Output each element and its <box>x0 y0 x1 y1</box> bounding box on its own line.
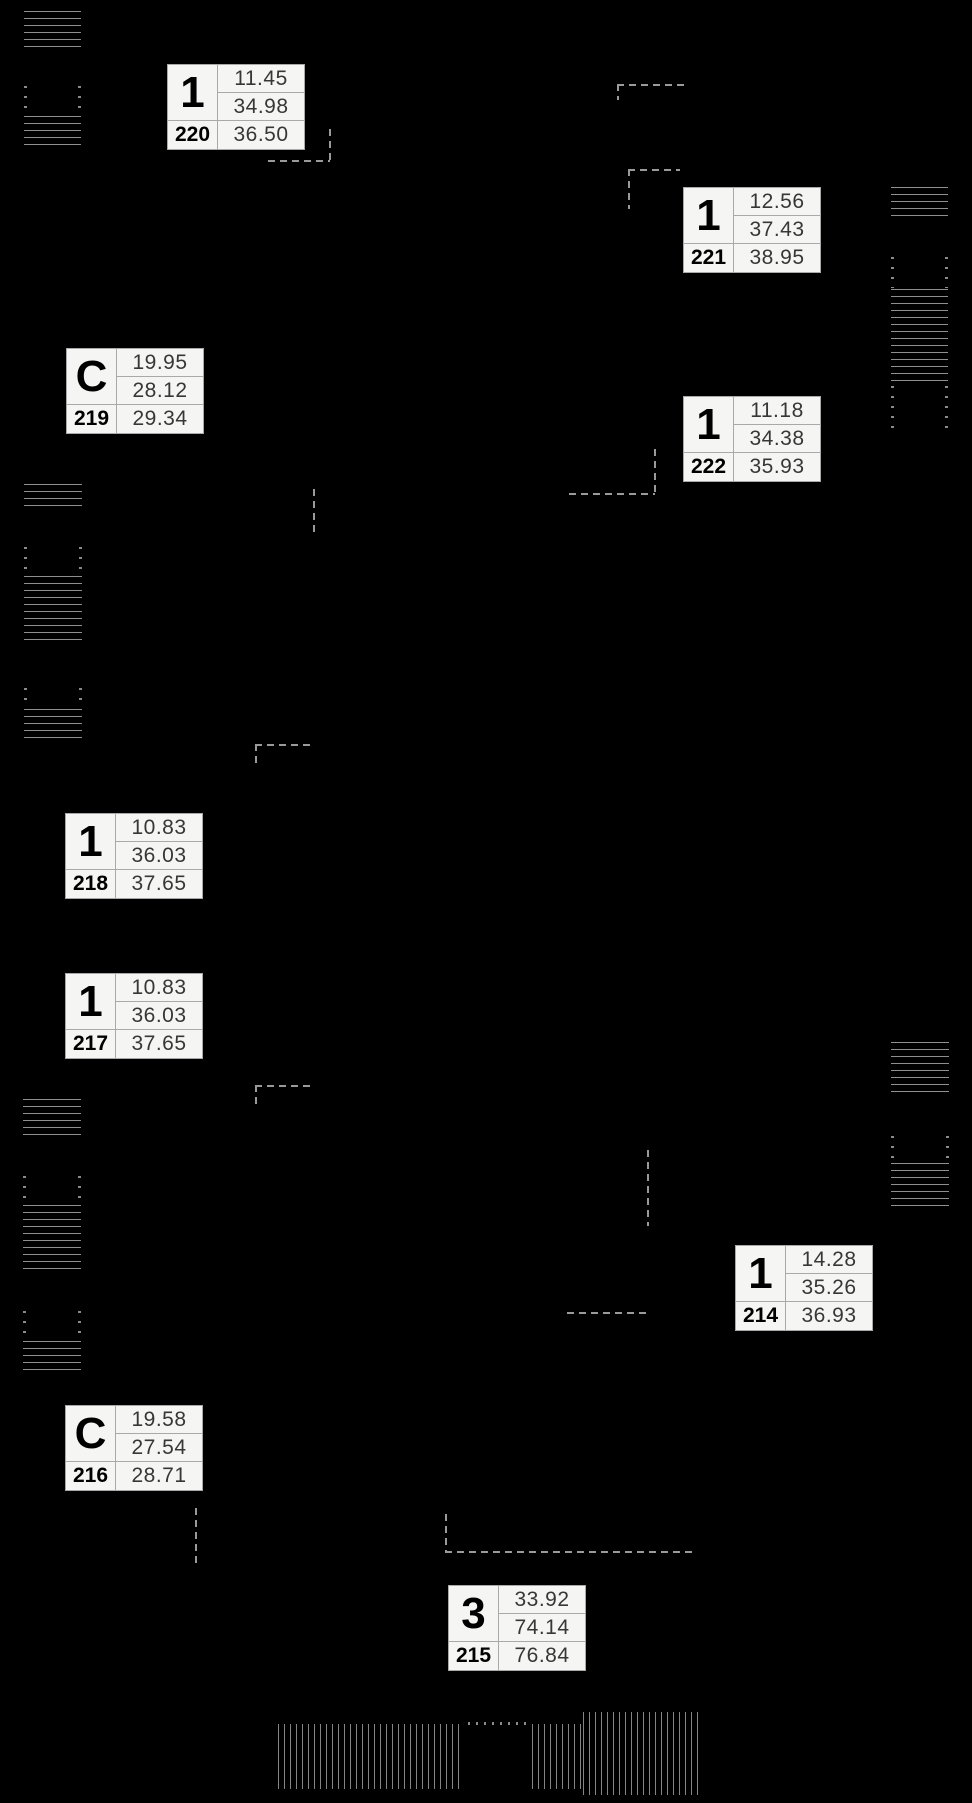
unit-type: 1 <box>66 814 116 870</box>
area-value-1: 10.83 <box>116 814 202 842</box>
dashed-line <box>647 1150 649 1226</box>
area-value-2: 27.54 <box>116 1434 202 1462</box>
dotted-opening-hatch <box>23 1311 81 1339</box>
dashed-line <box>268 160 330 162</box>
dashed-line <box>617 84 687 86</box>
area-value-1: 33.92 <box>499 1586 585 1614</box>
unit-label-215[interactable]: 3 215 33.92 74.14 76.84 <box>448 1585 586 1671</box>
area-value-2: 74.14 <box>499 1614 585 1642</box>
area-value-2: 36.03 <box>116 842 202 870</box>
stair-balcony-hatch <box>891 289 948 383</box>
unit-label-220[interactable]: 1 220 11.45 34.98 36.50 <box>167 64 305 150</box>
area-value-1: 11.18 <box>734 397 820 425</box>
unit-number: 219 <box>67 405 117 433</box>
unit-number: 215 <box>449 1642 499 1670</box>
unit-label-221[interactable]: 1 221 12.56 37.43 38.95 <box>683 187 821 273</box>
area-value-3: 29.34 <box>117 405 203 433</box>
unit-label-219[interactable]: C 219 19.95 28.12 29.34 <box>66 348 204 434</box>
dashed-line <box>329 129 331 161</box>
unit-label-214[interactable]: 1 214 14.28 35.26 36.93 <box>735 1245 873 1331</box>
dotted-opening-hatch <box>23 1176 81 1204</box>
unit-type: C <box>66 1406 116 1462</box>
dashed-line <box>255 744 257 763</box>
stair-balcony-hatch <box>23 1341 81 1375</box>
dashed-line <box>195 1508 197 1566</box>
stair-balcony-hatch <box>891 1042 949 1096</box>
dotted-opening-hatch <box>891 386 948 428</box>
dotted-opening-hatch <box>891 257 948 288</box>
area-value-2: 34.98 <box>218 93 304 121</box>
unit-number: 220 <box>168 121 218 149</box>
area-value-1: 12.56 <box>734 188 820 216</box>
stair-balcony-hatch <box>24 709 82 743</box>
area-value-3: 37.65 <box>116 1030 202 1058</box>
unit-type: 1 <box>736 1246 786 1302</box>
stair-balcony-hatch <box>891 187 948 220</box>
dashed-line <box>313 489 315 535</box>
stair-balcony-hatch <box>24 484 82 508</box>
unit-number: 217 <box>66 1030 116 1058</box>
dotted-opening-hatch <box>891 1136 949 1159</box>
unit-number: 216 <box>66 1462 116 1490</box>
area-value-2: 34.38 <box>734 425 820 453</box>
area-value-3: 28.71 <box>116 1462 202 1490</box>
dashed-line <box>567 1312 647 1314</box>
dashed-line <box>569 493 655 495</box>
dotted-opening-hatch <box>24 688 82 706</box>
unit-label-218[interactable]: 1 218 10.83 36.03 37.65 <box>65 813 203 899</box>
area-value-3: 38.95 <box>734 244 820 272</box>
stair-balcony-hatch <box>24 116 81 149</box>
stair-balcony-hatch <box>532 1724 583 1789</box>
area-value-3: 76.84 <box>499 1642 585 1670</box>
dashed-line <box>255 1085 257 1104</box>
stair-balcony-hatch <box>891 1163 949 1209</box>
unit-number: 214 <box>736 1302 786 1330</box>
dashed-line <box>445 1551 695 1553</box>
floor-plan: 1 220 11.45 34.98 36.50 1 221 12.56 37.4… <box>0 0 972 1803</box>
unit-label-216[interactable]: C 216 19.58 27.54 28.71 <box>65 1405 203 1491</box>
unit-type: C <box>67 349 117 405</box>
unit-type: 1 <box>684 188 734 244</box>
area-value-3: 36.50 <box>218 121 304 149</box>
dashed-line <box>445 1514 447 1552</box>
area-value-2: 36.03 <box>116 1002 202 1030</box>
dashed-line <box>255 1085 310 1087</box>
area-value-1: 19.58 <box>116 1406 202 1434</box>
stair-balcony-hatch <box>23 1099 81 1139</box>
dashed-line <box>628 169 630 209</box>
stair-balcony-hatch <box>24 576 82 646</box>
area-value-2: 35.26 <box>786 1274 872 1302</box>
unit-number: 218 <box>66 870 116 898</box>
unit-number: 222 <box>684 453 734 481</box>
unit-type: 1 <box>168 65 218 121</box>
stair-balcony-hatch <box>24 11 81 49</box>
dashed-line <box>617 84 619 100</box>
area-value-3: 35.93 <box>734 453 820 481</box>
unit-type: 1 <box>66 974 116 1030</box>
area-value-3: 36.93 <box>786 1302 872 1330</box>
area-value-1: 10.83 <box>116 974 202 1002</box>
dashed-line <box>654 449 656 495</box>
unit-number: 221 <box>684 244 734 272</box>
area-value-2: 28.12 <box>117 377 203 405</box>
area-value-3: 37.65 <box>116 870 202 898</box>
unit-type: 3 <box>449 1586 499 1642</box>
dashed-line <box>255 744 310 746</box>
dotted-opening-hatch <box>24 547 82 573</box>
area-value-1: 11.45 <box>218 65 304 93</box>
stair-balcony-hatch <box>583 1712 700 1795</box>
unit-type: 1 <box>684 397 734 453</box>
area-value-2: 37.43 <box>734 216 820 244</box>
stair-balcony-hatch <box>23 1205 81 1273</box>
area-value-1: 14.28 <box>786 1246 872 1274</box>
dotted-opening-hatch <box>24 86 81 114</box>
unit-label-217[interactable]: 1 217 10.83 36.03 37.65 <box>65 973 203 1059</box>
dashed-line <box>628 169 680 171</box>
stair-balcony-hatch <box>278 1724 464 1789</box>
dotted-opening-hatch <box>468 1722 528 1725</box>
unit-label-222[interactable]: 1 222 11.18 34.38 35.93 <box>683 396 821 482</box>
area-value-1: 19.95 <box>117 349 203 377</box>
